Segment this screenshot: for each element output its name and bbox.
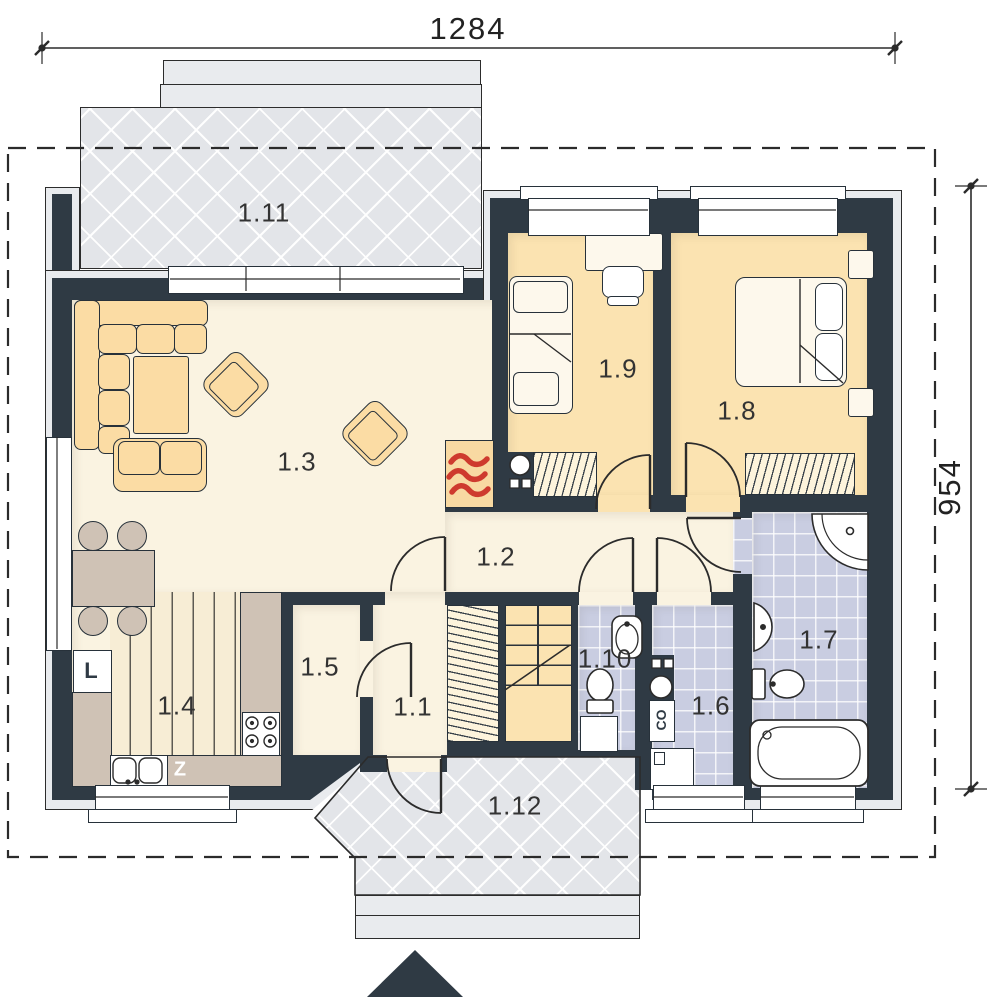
floor-plan-canvas: 1284 954 1.11 1.9 1.8 1.3 1.2 1.7 1.5 1.…: [0, 0, 991, 1000]
sofa-corner-back: [74, 300, 100, 450]
dimension-width-label: 1284: [430, 11, 507, 47]
chimney-block: [648, 655, 674, 702]
wardrobe-hall: [447, 605, 499, 742]
wall: [360, 697, 373, 755]
door-opening: [686, 495, 740, 512]
wall: [445, 592, 585, 605]
bed-foot-blanket: [513, 372, 559, 406]
room-floor-entry: [373, 592, 447, 755]
sofa-cushion: [160, 441, 202, 475]
wall: [492, 278, 508, 495]
terrace-step: [163, 60, 481, 86]
dimension-height-label: 954: [932, 458, 968, 516]
room-label-kitchen: 1.4: [157, 691, 196, 722]
room-label-living: 1.3: [277, 447, 316, 478]
sofa-cushion: [174, 324, 207, 354]
stove: [242, 712, 280, 756]
sofa-cushion: [98, 390, 130, 426]
window-side: [46, 437, 72, 651]
sofa-cushion: [98, 324, 137, 354]
room-label-closet: 1.5: [300, 652, 339, 683]
coffee-table: [133, 356, 189, 434]
wall: [650, 495, 686, 512]
entrance-arrow-icon: [367, 950, 463, 997]
fridge-label: L: [84, 658, 97, 684]
wall: [740, 495, 870, 512]
pillow: [815, 333, 843, 381]
desk-chair-back: [607, 296, 639, 306]
sofa-cushion: [98, 354, 130, 390]
window-terrace-door: [168, 266, 464, 294]
entry-step: [355, 895, 640, 917]
washing-machine-detail: [654, 752, 665, 765]
room-label-bedroom-big: 1.8: [717, 396, 756, 427]
wall: [633, 592, 657, 605]
wall: [447, 740, 578, 757]
stairs: [505, 605, 572, 742]
wardrobe: [745, 453, 855, 495]
room-label-utility: 1.6: [691, 691, 730, 722]
window-sill: [752, 809, 864, 823]
dining-chair: [117, 521, 147, 551]
chimney-block: [508, 452, 534, 495]
door-opening: [579, 592, 633, 605]
window: [698, 198, 838, 236]
dining-chair: [78, 521, 108, 551]
sofa-cushion: [118, 441, 160, 475]
room-label-bedroom-small: 1.9: [598, 354, 637, 385]
dining-chair: [78, 606, 108, 636]
wardrobe: [533, 452, 597, 497]
window: [653, 785, 745, 811]
terrace-top: [80, 107, 482, 269]
room-label-entry-terrace: 1.12: [488, 791, 543, 822]
fireplace: [445, 440, 494, 508]
door-opening: [387, 755, 441, 772]
entry-step: [355, 915, 640, 939]
wc-counter: [580, 716, 618, 752]
pillow: [815, 283, 843, 331]
door-opening: [657, 592, 711, 605]
door-opening: [598, 495, 650, 512]
room-label-wc: 1.10: [578, 644, 633, 675]
window-sill: [645, 809, 753, 823]
kitchen-counter: [72, 692, 112, 787]
door-opening: [360, 641, 373, 697]
wall: [280, 592, 385, 605]
dining-chair: [117, 606, 147, 636]
kitchen-sink: [110, 755, 168, 787]
pillow: [513, 281, 568, 313]
boiler-label: CO: [653, 710, 669, 731]
room-label-terrace: 1.11: [238, 198, 291, 229]
window-sill: [88, 809, 237, 823]
door-opening: [733, 518, 752, 574]
wall: [711, 592, 733, 605]
stairs-rail: [537, 606, 539, 686]
terrace-entry: [315, 757, 640, 895]
nightstand: [848, 250, 874, 279]
window: [528, 198, 650, 236]
wall: [360, 605, 373, 641]
room-label-bathroom: 1.7: [799, 625, 838, 656]
room-label-entry: 1.1: [393, 692, 432, 723]
desk-chair: [602, 266, 644, 298]
dishwasher-label: Z: [174, 759, 186, 782]
nightstand: [848, 388, 874, 417]
dining-table: [72, 550, 155, 607]
window: [95, 785, 230, 811]
window: [760, 785, 856, 811]
sofa-cushion: [136, 324, 175, 354]
room-label-hallway: 1.2: [476, 542, 515, 573]
